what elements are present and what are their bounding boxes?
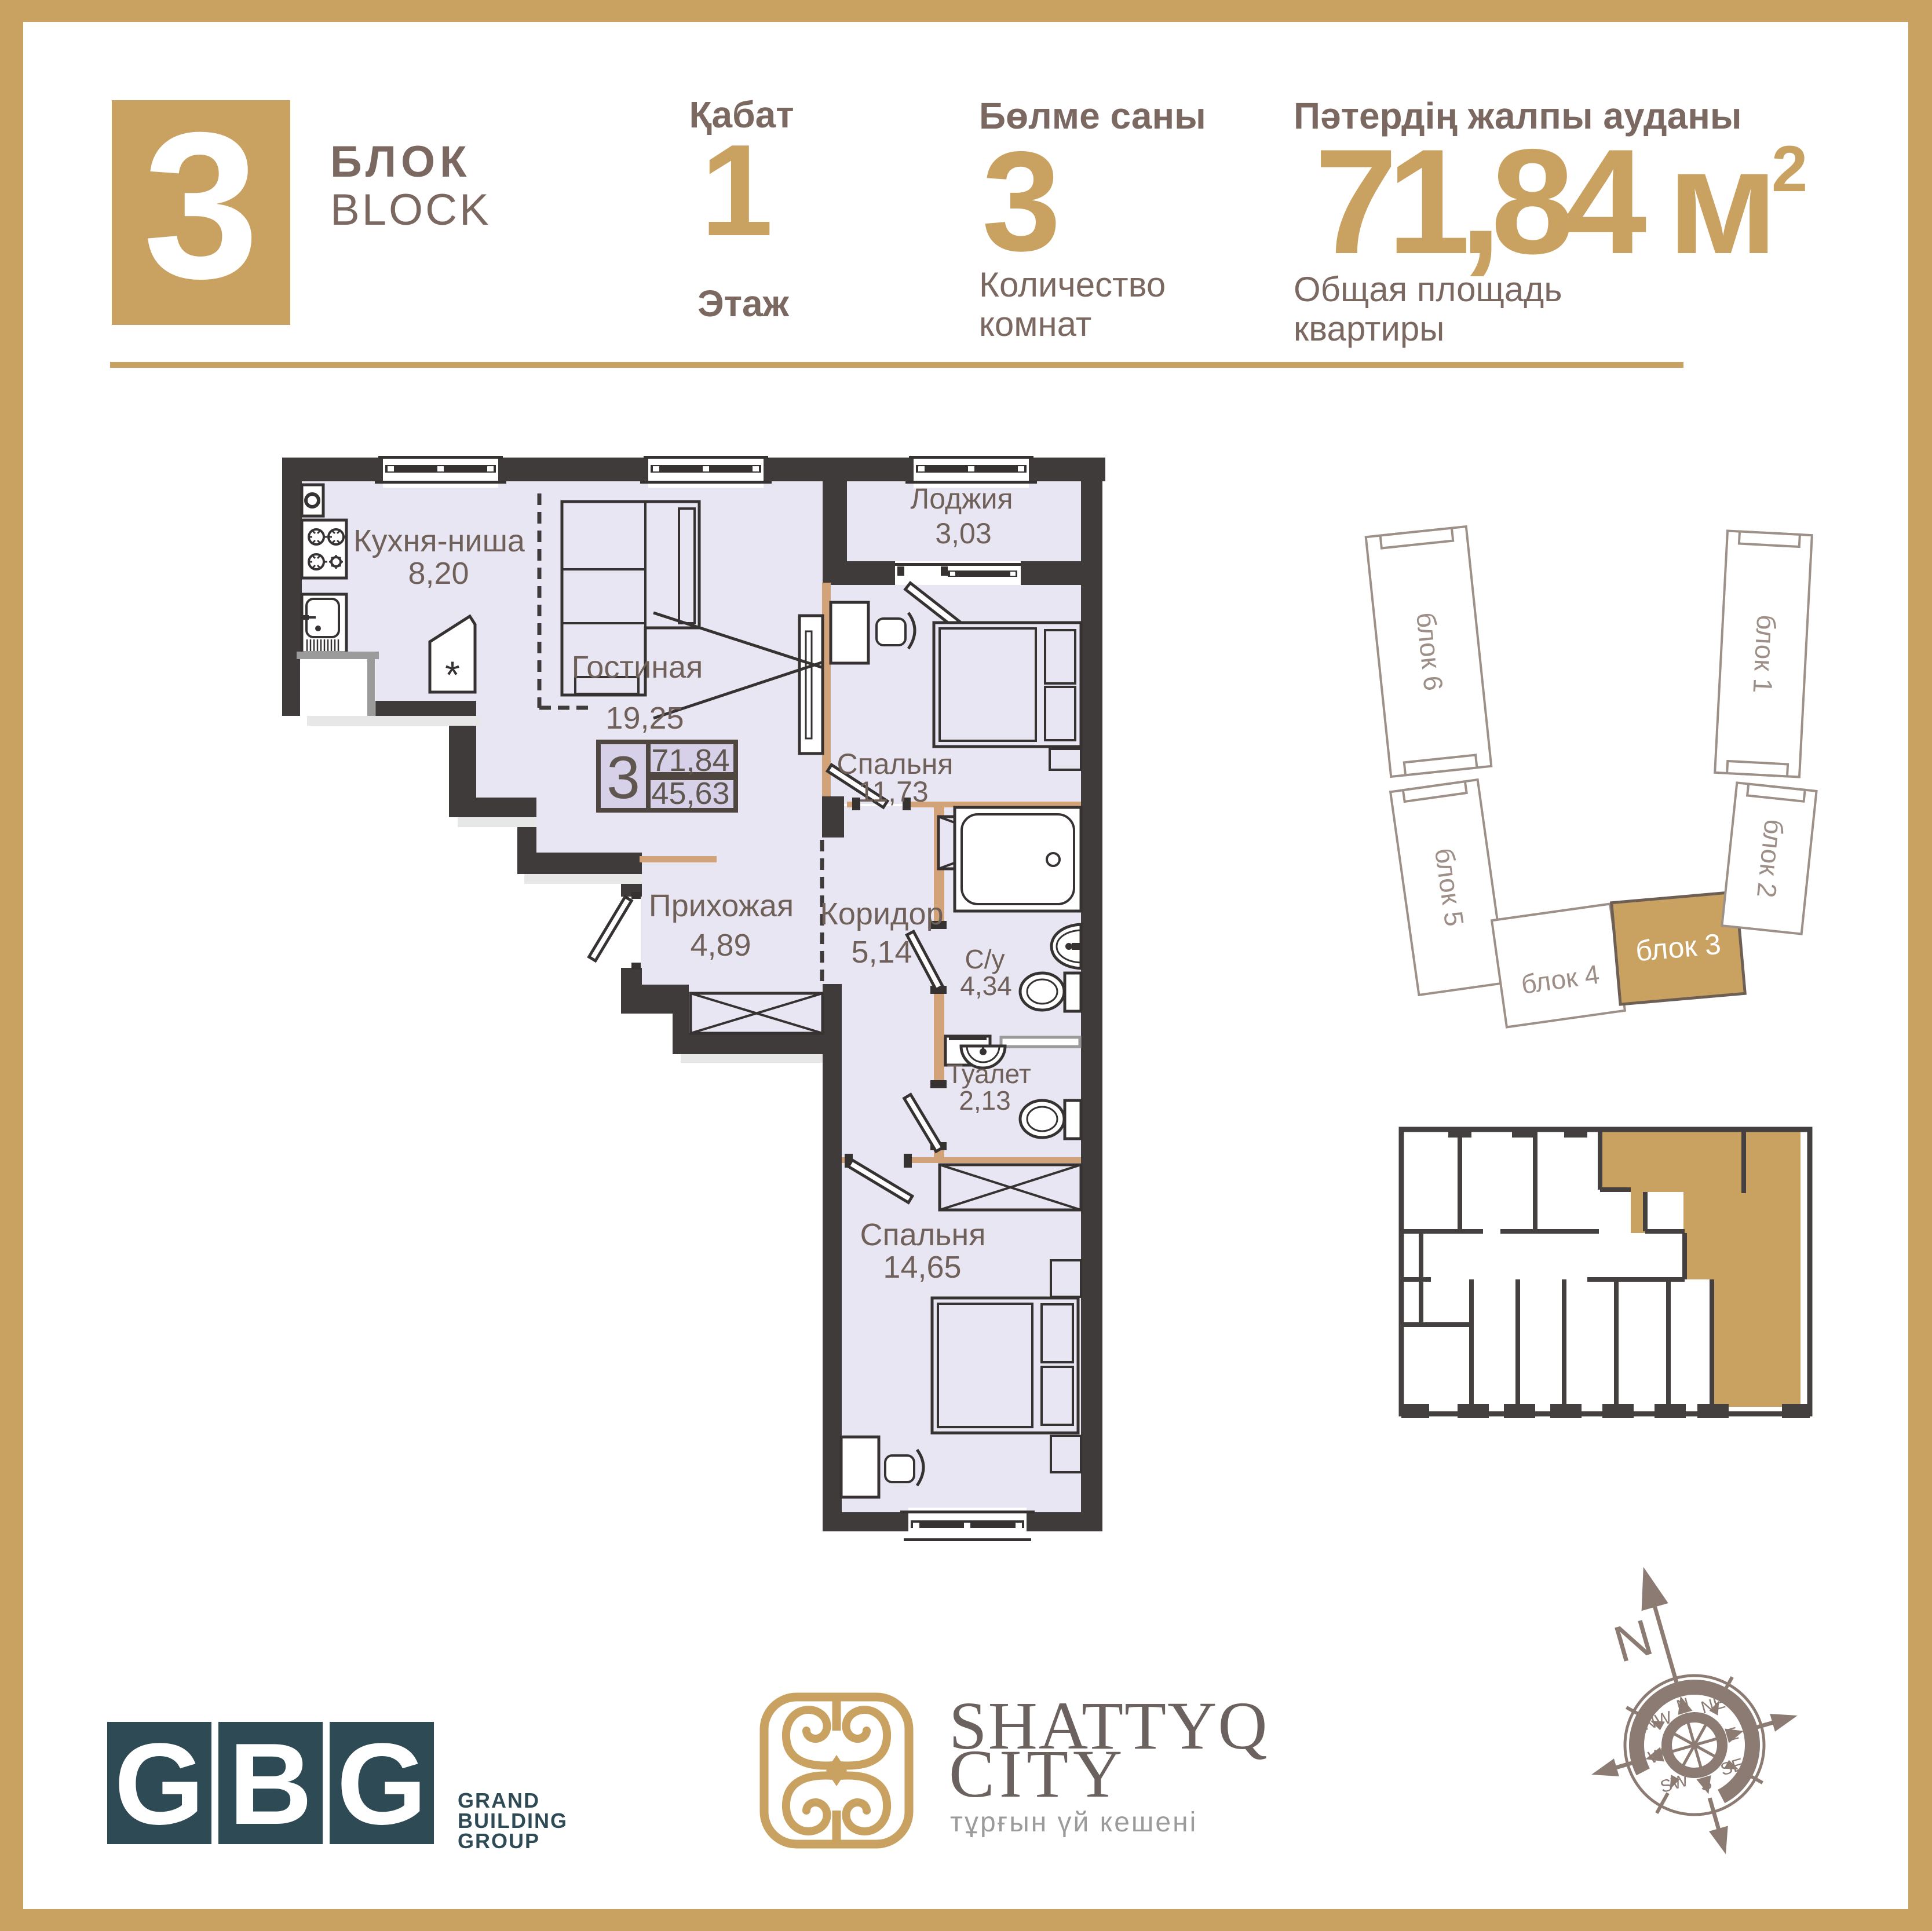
svg-text:5,14: 5,14 (851, 935, 912, 970)
svg-text:BLOCK: BLOCK (330, 185, 491, 235)
svg-text:71,84 м: 71,84 м (1314, 118, 1768, 285)
svg-text:14,65: 14,65 (883, 1250, 961, 1285)
svg-text:Коридор: Коридор (820, 897, 943, 931)
svg-text:8,20: 8,20 (408, 556, 469, 591)
svg-text:блок 1: блок 1 (1747, 614, 1781, 694)
svg-text:71,84: 71,84 (651, 743, 729, 778)
svg-text:2: 2 (1772, 133, 1807, 205)
svg-text:3: 3 (143, 89, 259, 322)
svg-text:B: B (229, 1720, 312, 1849)
svg-text:GROUP: GROUP (458, 1829, 540, 1853)
svg-text:Лоджия: Лоджия (910, 482, 1013, 515)
svg-text:Гостиная: Гостиная (572, 650, 703, 685)
svg-text:11,73: 11,73 (858, 776, 928, 808)
svg-text:3: 3 (607, 744, 640, 811)
svg-text:квартиры: квартиры (1294, 309, 1444, 348)
svg-text:Кухня-ниша: Кухня-ниша (353, 524, 525, 558)
svg-text:С/у: С/у (965, 944, 1005, 974)
svg-text:Прихожая: Прихожая (649, 888, 794, 923)
svg-text:4,34: 4,34 (960, 971, 1012, 1001)
svg-text:19,25: 19,25 (605, 701, 684, 736)
svg-text:CITY: CITY (949, 1736, 1127, 1812)
svg-text:3: 3 (982, 122, 1061, 280)
svg-text:45,63: 45,63 (651, 776, 729, 811)
svg-text:Этаж: Этаж (697, 283, 789, 324)
svg-text:3,03: 3,03 (935, 517, 991, 550)
svg-text:Спальня: Спальня (860, 1217, 986, 1252)
svg-text:G: G (337, 1720, 427, 1849)
svg-text:4,89: 4,89 (690, 928, 751, 963)
svg-text:G: G (114, 1720, 204, 1849)
svg-text:комнат: комнат (979, 305, 1091, 343)
svg-text:2,13: 2,13 (959, 1085, 1011, 1116)
svg-text:Общая площадь: Общая площадь (1294, 270, 1562, 309)
svg-text:1: 1 (700, 117, 773, 263)
svg-text:*: * (445, 653, 460, 696)
svg-text:БЛОК: БЛОК (330, 137, 472, 186)
svg-text:Количество: Количество (979, 265, 1166, 304)
svg-text:Туалет: Туалет (947, 1059, 1031, 1089)
svg-text:тұрғын үй кешені: тұрғын үй кешені (950, 1807, 1197, 1838)
